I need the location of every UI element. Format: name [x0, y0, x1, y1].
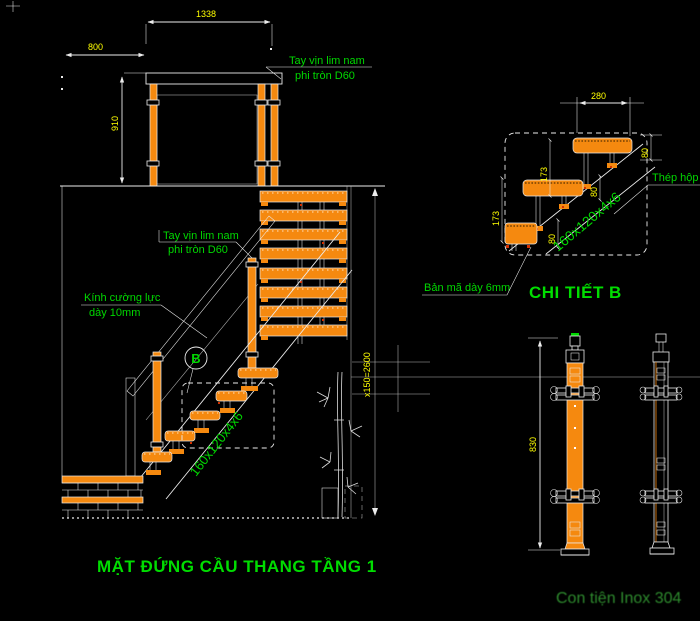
dim-baluster-height: 830 [528, 338, 560, 550]
label-plate: Bản mã dày 6mm [422, 247, 531, 295]
cad-drawing-canvas: 1338 800 910 [0, 0, 700, 621]
detail-b: 280 80 173 173 80 80 160x120x4x6 Bản mã … [422, 91, 700, 302]
stair-drawing-svg: 1338 800 910 [0, 0, 700, 621]
svg-text:phi tròn D60: phi tròn D60 [168, 244, 228, 256]
label-box-steel: Thép hộp [614, 172, 700, 214]
svg-text:173: 173 [539, 167, 549, 182]
axis-grid: x150=2600 [352, 188, 430, 516]
flight-baluster-b [151, 352, 163, 452]
svg-text:830: 830 [528, 437, 538, 452]
column-base-dots [345, 486, 362, 518]
svg-text:B: B [191, 351, 200, 366]
svg-text:910: 910 [110, 116, 120, 131]
detail-dim-rise-b: 173 [491, 178, 502, 242]
svg-text:Kính cường lực: Kính cường lực [84, 292, 161, 304]
column-base-hatch [322, 488, 338, 518]
svg-text:280: 280 [591, 91, 606, 101]
label-glass: Kính cường lực dày 10mm [81, 292, 207, 338]
svg-text:Bản mã dày 6mm: Bản mã dày 6mm [424, 282, 510, 294]
handrail-top [146, 73, 282, 84]
svg-text:Thép hộp: Thép hộp [652, 172, 698, 184]
flight-baluster-a [246, 258, 258, 368]
detail-marker-b: B [185, 347, 207, 393]
corner-tick [6, 1, 20, 12]
svg-text:dày 10mm: dày 10mm [89, 307, 140, 319]
brick-wall [62, 476, 143, 518]
svg-text:80: 80 [640, 148, 650, 158]
svg-text:1338: 1338 [196, 9, 216, 19]
svg-text:800: 800 [88, 42, 103, 52]
drawing-title: MẶT ĐỨNG CẦU THANG TẦNG 1 [97, 557, 377, 576]
glass-panel [157, 95, 257, 184]
detail-label-stringer: 160x120x4x6 [550, 188, 624, 254]
upper-tread-stack [260, 186, 347, 344]
svg-text:173: 173 [491, 211, 501, 226]
wall-edge-strip [126, 378, 135, 476]
dim-top-width: 1338 [146, 9, 272, 50]
detail-dim-right80: 80 [640, 135, 662, 160]
svg-text:Tay vịn lim nam: Tay vịn lim nam [289, 55, 365, 67]
svg-text:Tay vịn lim nam: Tay vịn lim nam [163, 230, 239, 242]
dim-left-offset: 800 [61, 42, 144, 90]
dim-total-rise: x150=2600 [362, 352, 372, 397]
detail-tread-3 [505, 223, 537, 251]
baluster-front [551, 333, 600, 555]
baluster-side [640, 334, 682, 554]
baluster-caption: Con tiện Inox 304 [556, 590, 682, 607]
detail-title: CHI TIẾT B [529, 283, 622, 302]
dim-rail-height: 910 [110, 73, 146, 183]
detail-dim-width: 280 [560, 91, 644, 136]
landing-railing [146, 73, 282, 186]
svg-text:80: 80 [589, 187, 599, 197]
stair-elevation: 1338 800 910 [6, 1, 430, 576]
svg-text:phi tròn D60: phi tròn D60 [295, 70, 355, 82]
baluster-details: 830 [351, 333, 700, 607]
